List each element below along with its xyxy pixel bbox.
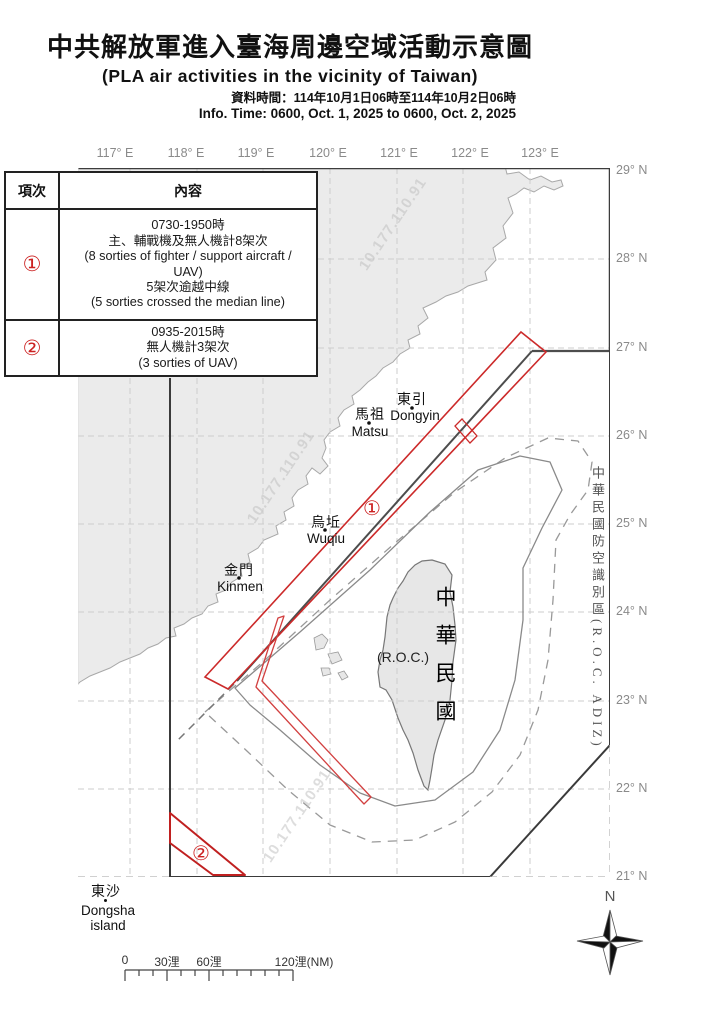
page-subtitle: (PLA air activities in the vicinity of T… (0, 66, 580, 87)
dongsha-label-en: Dongsha (68, 903, 148, 918)
compass-rose: N (575, 888, 645, 984)
info-time-en: Info. Time: 0600, Oct. 1, 2025 to 0600, … (0, 106, 516, 121)
kinmen-label-en: Kinmen (200, 579, 280, 594)
scale-bar: 0 30浬 60浬 120浬(NM) (118, 953, 358, 987)
page-title: 中共解放軍進入臺海周邊空域活動示意圖 (0, 27, 580, 64)
row-2-content: 0935-2015時 無人機計3架次 (3 sorties of UAV) (60, 321, 316, 375)
col-header-item: 項次 (6, 173, 60, 208)
dongsha-label-en2: island (68, 918, 148, 933)
lat-label-29n: 29° N (616, 163, 676, 177)
table-row: ② 0935-2015時 無人機計3架次 (3 sorties of UAV) (6, 321, 316, 375)
roc-label-paren: (R.O.C.) (363, 649, 443, 665)
info-time-block: 資料時間：114年10月1日06時至114年10月2日06時 Info. Tim… (0, 91, 516, 121)
lat-label-26n: 26° N (616, 428, 676, 442)
table-header-row: 項次 內容 (6, 173, 316, 210)
lat-label-28n: 28° N (616, 251, 676, 265)
row-2-number: ② (6, 321, 60, 375)
lat-label-22n: 22° N (616, 781, 676, 795)
wuqiu-label-zh: 烏坵 (296, 512, 356, 532)
lat-label-24n: 24° N (616, 604, 676, 618)
lon-label-119e: 119° E (232, 146, 280, 160)
lat-label-25n: 25° N (616, 516, 676, 530)
dongsha-dot (104, 899, 107, 902)
lon-label-118e: 118° E (162, 146, 210, 160)
route-1-marker: ① (360, 496, 384, 521)
lon-label-120e: 120° E (304, 146, 352, 160)
compass-star-icon (575, 902, 645, 984)
lon-label-123e: 123° E (516, 146, 564, 160)
scale-bar-ruler (118, 968, 318, 986)
lon-label-117e: 117° E (91, 146, 139, 160)
route-2-marker: ② (189, 841, 213, 866)
scale-label-0: 0 (115, 953, 135, 967)
lon-label-122e: 122° E (446, 146, 494, 160)
matsu-label-en: Matsu (330, 424, 410, 439)
page: { "header": { "title": "中共解放軍進入臺海周邊空域活動示… (0, 0, 709, 1024)
row-1-number: ① (6, 210, 60, 319)
table-row: ① 0730-1950時 主、輔戰機及無人機計8架次 (8 sorties of… (6, 210, 316, 321)
lat-label-23n: 23° N (616, 693, 676, 707)
kinmen-label-zh: 金門 (209, 560, 269, 580)
matsu-label-zh: 馬祖 (340, 404, 400, 424)
row-1-content: 0730-1950時 主、輔戰機及無人機計8架次 (8 sorties of f… (60, 210, 316, 319)
activity-table: 項次 內容 ① 0730-1950時 主、輔戰機及無人機計8架次 (8 sort… (4, 171, 318, 377)
lat-label-21n: 21° N (616, 869, 676, 883)
penghu-islands (314, 634, 348, 680)
lon-label-121e: 121° E (375, 146, 423, 160)
info-time-zh: 資料時間：114年10月1日06時至114年10月2日06時 (0, 91, 516, 106)
lat-label-27n: 27° N (616, 340, 676, 354)
wuqiu-label-en: Wuqiu (286, 531, 366, 546)
adiz-label: 中華民國防空識別區(R.O.C. ADIZ) (588, 466, 607, 750)
col-header-content: 內容 (60, 173, 316, 208)
dongsha-label-zh: 東沙 (76, 881, 136, 901)
